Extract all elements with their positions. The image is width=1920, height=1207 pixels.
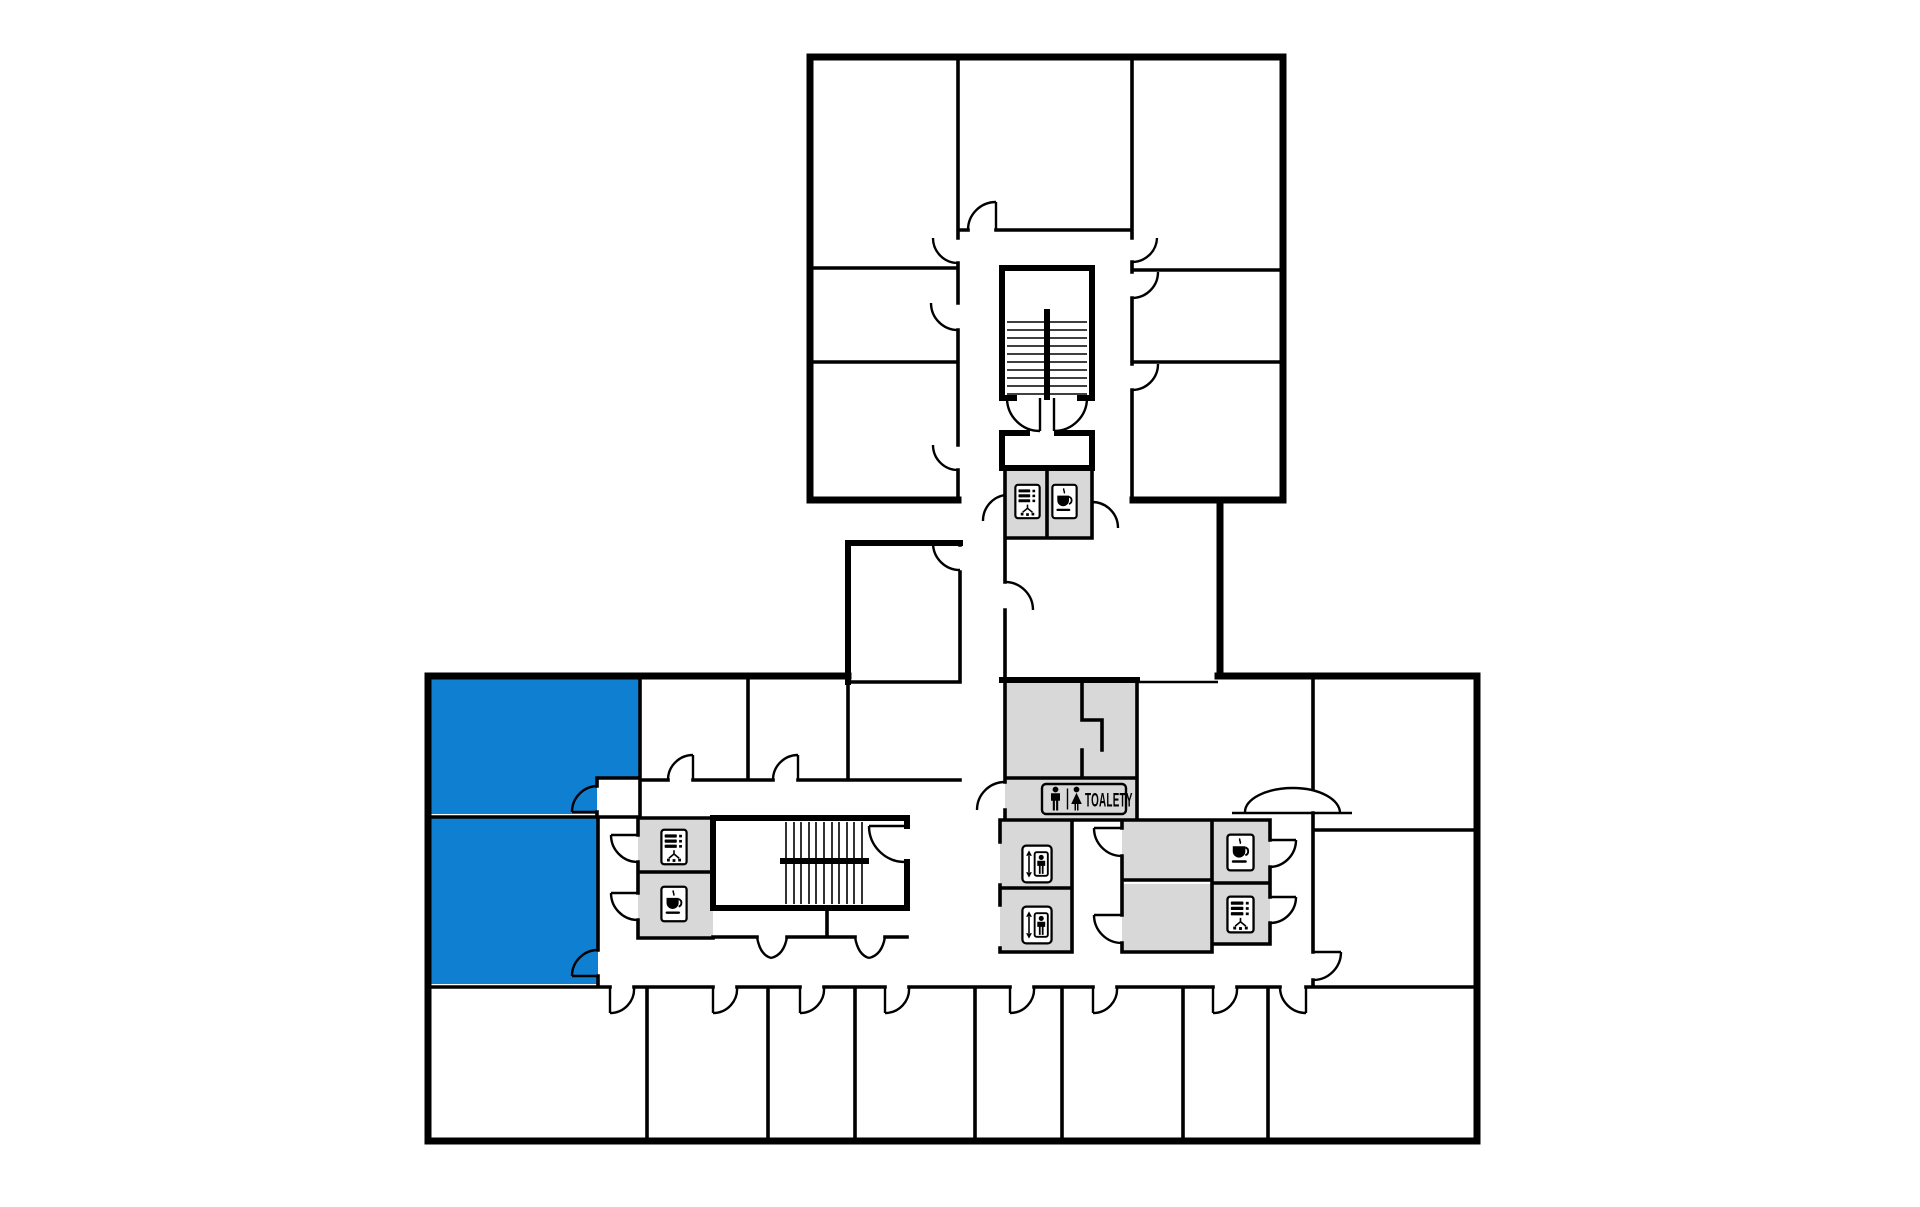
coffee-icon (1052, 485, 1076, 518)
vending-machine-icon (661, 830, 686, 865)
vending-machine-icon (1015, 485, 1039, 518)
floor-plan-svg: TOALETY (0, 0, 1920, 1207)
highlighted-room-lower[interactable] (431, 817, 598, 984)
highlighted-units (431, 679, 640, 984)
storage-room-2 (1122, 884, 1212, 952)
floor-plan-canvas: TOALETY (0, 0, 1920, 1207)
storage-room-1 (1122, 820, 1212, 880)
elevator-icon (1022, 907, 1051, 944)
highlighted-room-upper[interactable] (431, 679, 640, 814)
toilet-room-block (1005, 683, 1137, 778)
toilets-label: TOALETY (1085, 790, 1133, 811)
toilets-sign: TOALETY (1042, 784, 1133, 814)
coffee-icon (661, 887, 686, 922)
coffee-icon (1227, 835, 1253, 871)
vending-machine-icon (1227, 897, 1253, 933)
elevator-icon (1022, 846, 1051, 883)
